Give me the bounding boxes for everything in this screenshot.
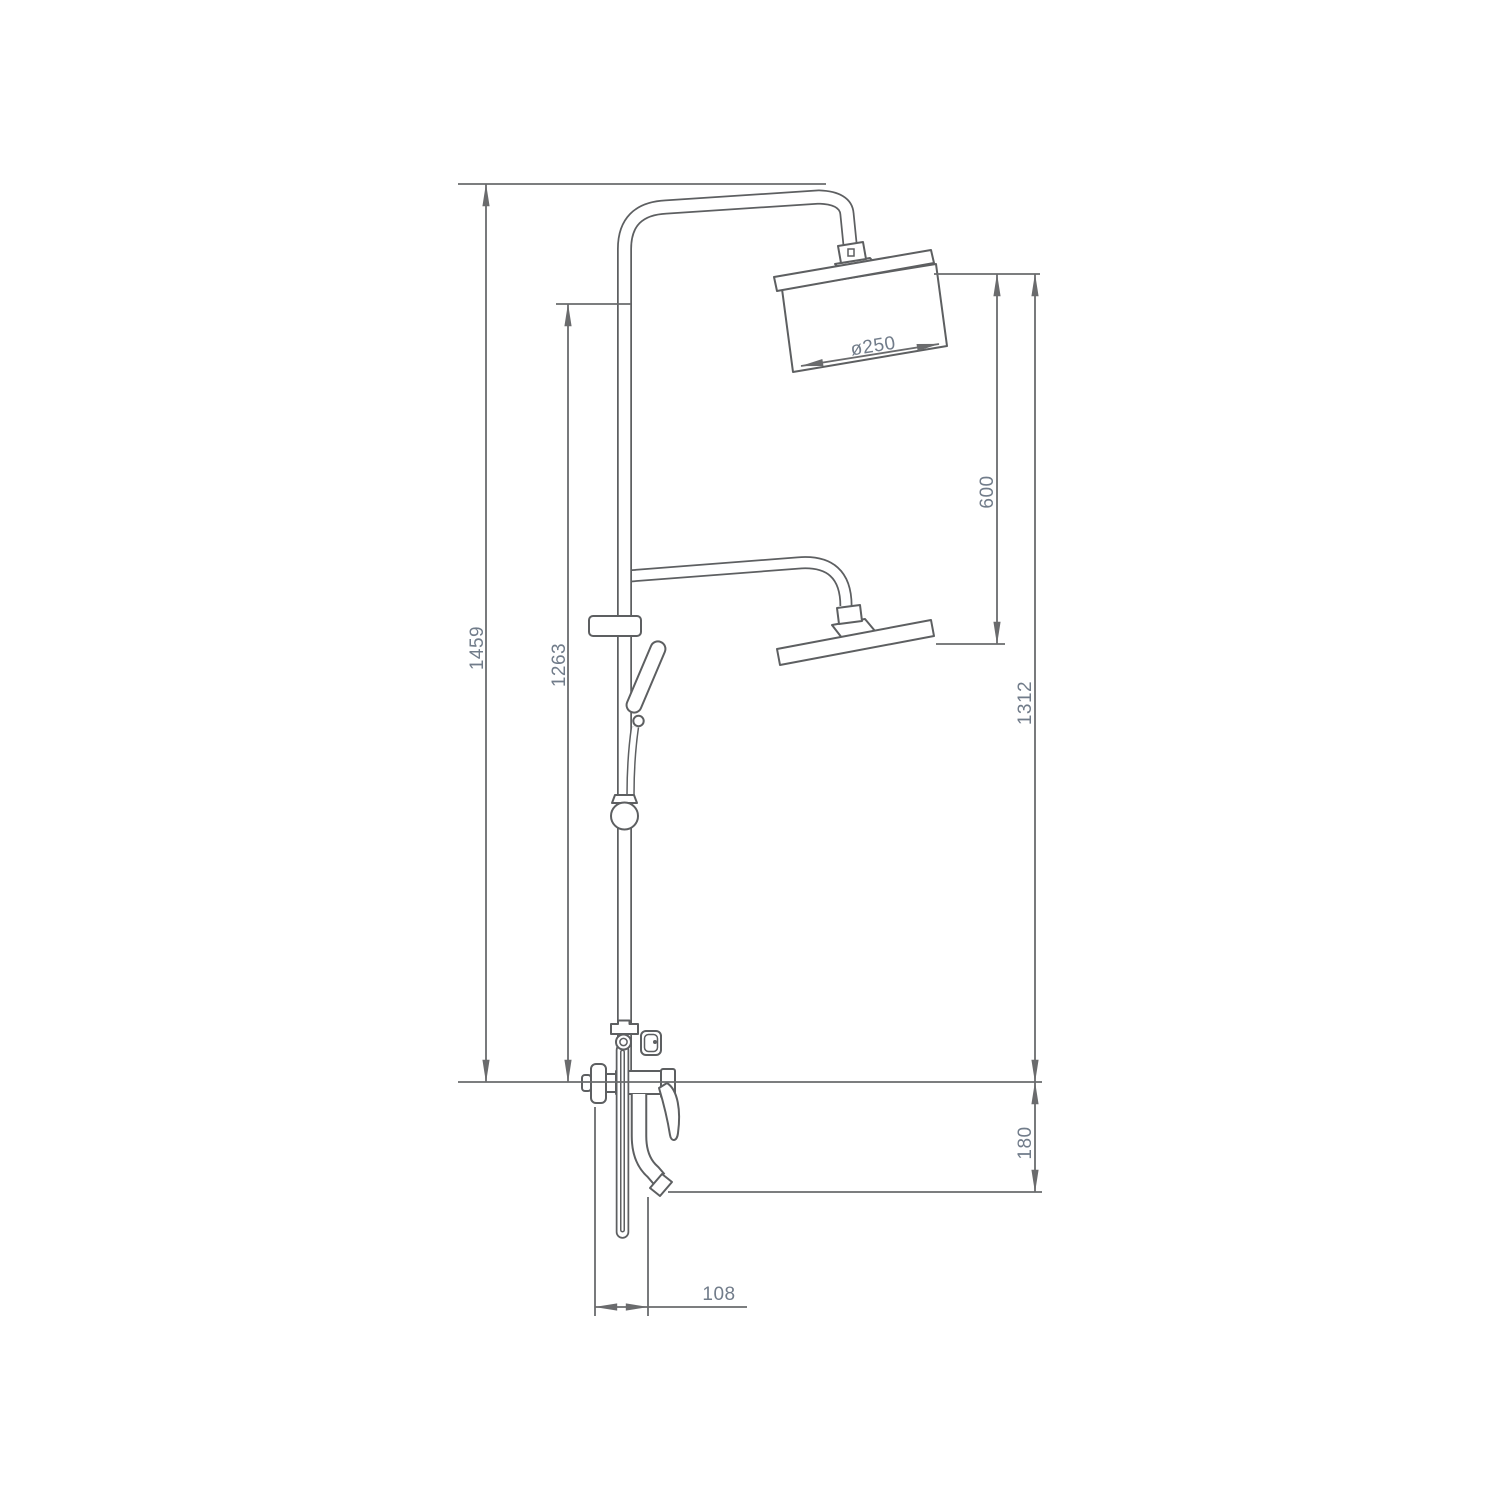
hose-connector: [616, 1035, 631, 1050]
ball-joint-sphere: [611, 803, 638, 830]
drawing-background: [0, 0, 1500, 1500]
overhead-head-nut: [838, 242, 866, 263]
technical-drawing-page: 1459 1263 600 1312 180: [0, 0, 1500, 1500]
dimension-label-spout-offset: 108: [702, 1284, 735, 1305]
wall-flange: [591, 1064, 606, 1103]
dimension-label-riser-height: 1263: [549, 643, 570, 687]
wall-nub: [582, 1075, 591, 1091]
hand-shower-ring: [633, 716, 643, 726]
slide-bar-bracket: [589, 616, 641, 636]
dimension-label-total-height: 1459: [467, 626, 488, 670]
dimension-label-head-spacing: 600: [977, 475, 998, 508]
shower-column-dimension-drawing: 1459 1263 600 1312 180: [0, 0, 1500, 1500]
dimension-label-arm-height: 1312: [1015, 681, 1036, 725]
ball-joint: [611, 795, 638, 830]
diverter-dot: [653, 1040, 657, 1044]
lower-head-nut: [837, 605, 862, 624]
dimension-label-spout-drop: 180: [1015, 1126, 1036, 1159]
